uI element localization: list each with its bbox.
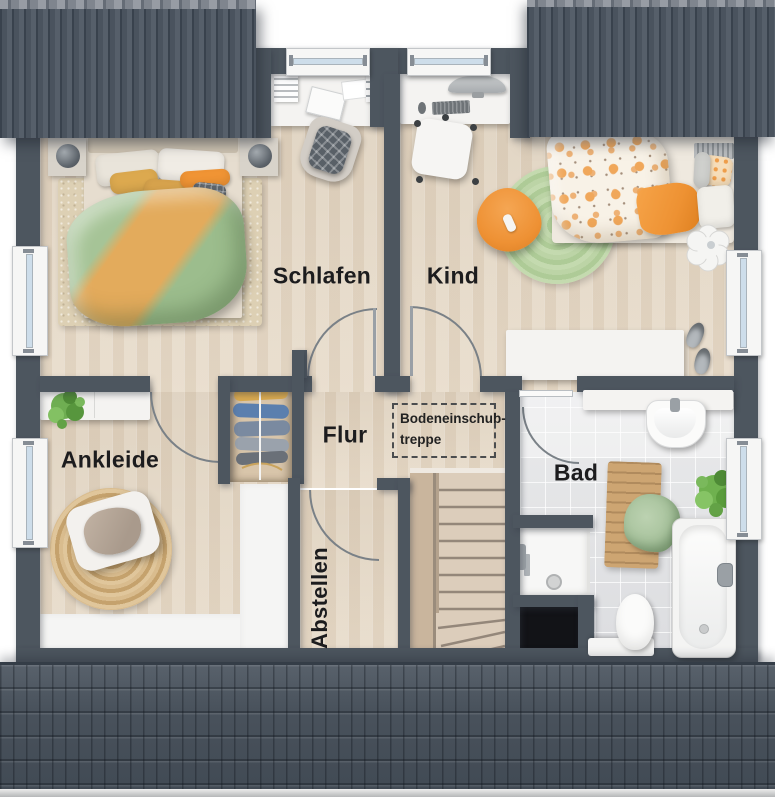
attic-hatch-line1: Bodeneinschub- (400, 409, 494, 430)
tub-faucet (718, 564, 732, 586)
pillow-white-kind (696, 185, 736, 230)
window-right-bad (726, 438, 762, 540)
window-glass (26, 446, 33, 540)
window-cap (23, 541, 34, 545)
chair-wheels (414, 120, 421, 127)
flower-side-table (684, 224, 732, 272)
attic-hatch-annotation: Bodeneinschub- treppe (392, 403, 496, 458)
shower-drain (546, 574, 562, 590)
window-cap (737, 441, 748, 445)
pillow-gray (693, 152, 711, 189)
tub-drain (699, 624, 709, 634)
room-label-ankleide: Ankleide (61, 447, 159, 474)
wall-mid-d (480, 376, 522, 392)
room-label-flur: Flur (323, 422, 368, 449)
window-right-kind (726, 250, 762, 356)
window-cap (737, 349, 748, 353)
roof-top-right (527, 0, 775, 137)
wall-outer-left (16, 128, 40, 660)
window-cap (23, 349, 34, 353)
window-cap (363, 55, 367, 66)
mouse (418, 102, 426, 114)
toilet-bowl (616, 594, 654, 650)
window-cap (410, 55, 414, 66)
wall-closet-right (292, 350, 304, 484)
wall-below-closet (288, 478, 300, 660)
knee-wall-area-vertical (240, 484, 288, 658)
window-glass (740, 446, 747, 532)
wall-stairs-left (398, 478, 410, 660)
roof-bottom (0, 662, 775, 792)
door-leaf-kind (410, 306, 413, 376)
window-cap (737, 533, 748, 537)
staircase (410, 468, 505, 660)
monitor (448, 76, 506, 93)
bedside-lamp-right (248, 144, 272, 168)
bedside-lamp-left (56, 144, 80, 168)
window-glass (26, 254, 33, 348)
window-glass (293, 58, 363, 65)
window-cap (23, 249, 34, 253)
door-leaf-schlafen (373, 308, 376, 376)
monitor-stand (472, 92, 484, 98)
wall-shower-top (513, 515, 593, 528)
window-cap (737, 253, 748, 257)
window-cap (484, 55, 488, 66)
kind-cabinet (506, 330, 684, 380)
roof-top-left (0, 4, 256, 138)
books-stack-left (274, 76, 298, 102)
office-chair (410, 117, 474, 181)
wall-center (384, 74, 400, 392)
closet-rail (259, 380, 261, 480)
towel-rail (519, 390, 573, 397)
window-glass (414, 58, 484, 65)
room-label-kind: Kind (427, 263, 479, 290)
wall-mid-c (375, 376, 410, 392)
wall-outer-right (734, 128, 758, 660)
attic-hatch-line2: treppe (400, 430, 494, 451)
roof-ridge-top-left (0, 0, 256, 9)
window-cap (289, 55, 293, 66)
double-bed-duvet (64, 184, 251, 330)
keyboard (432, 100, 471, 115)
sink-tap (670, 398, 680, 412)
room-label-bad: Bad (554, 460, 598, 487)
window-cap (23, 441, 34, 445)
window-left-schlafen (12, 246, 48, 356)
wall-mid-a (40, 376, 150, 392)
wall-closet-left (218, 376, 230, 484)
window-glass (740, 258, 747, 348)
room-label-schlafen: Schlafen (273, 263, 371, 290)
roof-ridge-top-right (527, 0, 775, 7)
roof-gutter (0, 789, 775, 797)
window-top-schlafen (286, 48, 370, 76)
window-top-kind (407, 48, 491, 76)
floor-plan: Schlafen Kind Ankleide Flur Abstellen Ba… (0, 0, 775, 797)
hanging-clothes (230, 380, 292, 480)
window-left-ankleide (12, 438, 48, 548)
room-label-abstellen: Abstellen (307, 547, 333, 649)
